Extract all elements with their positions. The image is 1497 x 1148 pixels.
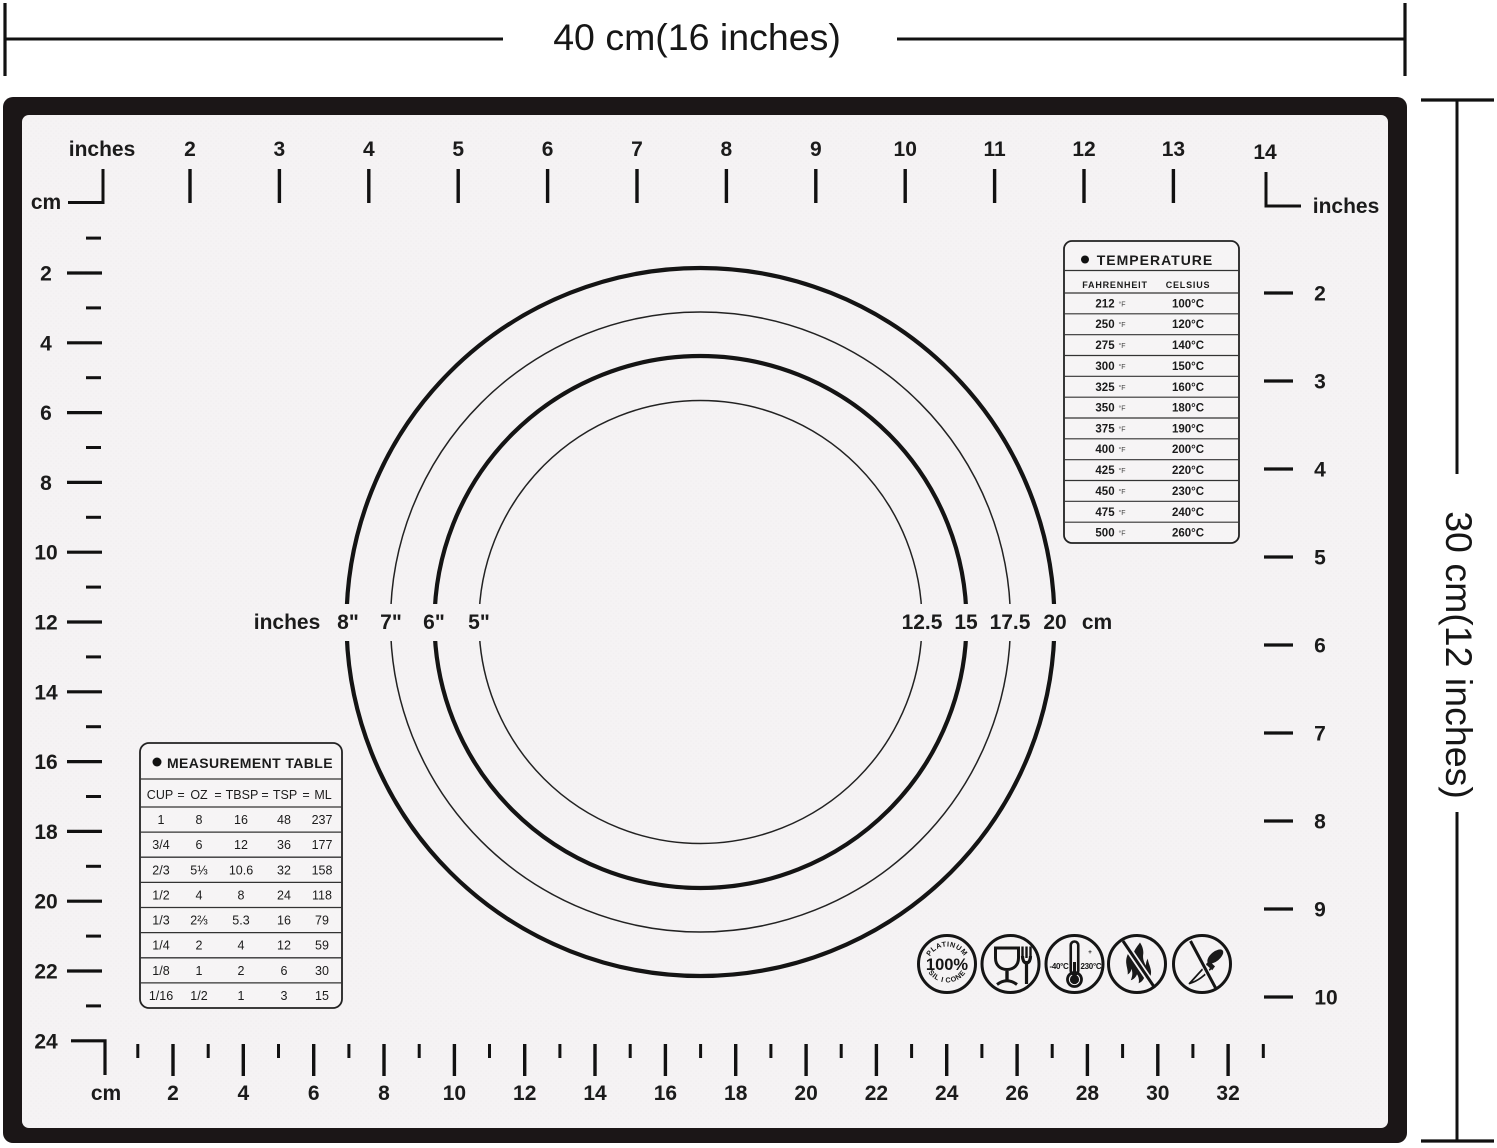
svg-text:5.3: 5.3 [232, 914, 249, 928]
svg-text:1/4: 1/4 [152, 939, 169, 953]
svg-text:12: 12 [1072, 138, 1095, 161]
svg-text:1: 1 [196, 964, 203, 978]
svg-text:cm: cm [91, 1082, 121, 1105]
svg-text:200°C: 200°C [1172, 444, 1204, 456]
svg-text:5": 5" [468, 611, 490, 634]
svg-text:10: 10 [34, 542, 57, 565]
svg-text:7: 7 [631, 138, 643, 161]
svg-text:OZ: OZ [190, 788, 208, 802]
svg-text:2: 2 [167, 1082, 179, 1105]
svg-text:6: 6 [196, 838, 203, 852]
svg-text:20: 20 [1043, 611, 1066, 634]
svg-text:4: 4 [363, 138, 375, 161]
svg-text:10: 10 [894, 138, 917, 161]
svg-text:190°C: 190°C [1172, 423, 1204, 435]
svg-text:5: 5 [1314, 547, 1326, 570]
svg-text:+: + [1088, 949, 1092, 956]
svg-text:2: 2 [238, 964, 245, 978]
svg-text:4: 4 [40, 332, 52, 355]
svg-text:6: 6 [542, 138, 554, 161]
svg-text:8": 8" [337, 611, 359, 634]
svg-text:26: 26 [1005, 1082, 1028, 1105]
svg-text:TSP: TSP [273, 788, 297, 802]
svg-text:2⅔: 2⅔ [190, 914, 208, 928]
svg-text:9: 9 [810, 138, 822, 161]
svg-text:1/2: 1/2 [190, 989, 207, 1003]
svg-text:inches: inches [254, 611, 321, 634]
svg-text:°F: °F [1118, 446, 1125, 454]
svg-text:-40°C: -40°C [1049, 962, 1069, 971]
svg-text:12: 12 [234, 838, 248, 852]
svg-text:100%: 100% [926, 956, 969, 974]
svg-text:22: 22 [865, 1082, 888, 1105]
svg-text:CUP: CUP [147, 788, 173, 802]
svg-text:°F: °F [1118, 425, 1125, 433]
svg-text:3/4: 3/4 [152, 838, 169, 852]
svg-text:30: 30 [1146, 1082, 1169, 1105]
svg-text:8: 8 [378, 1082, 390, 1105]
svg-text:2: 2 [184, 138, 196, 161]
svg-text:=: = [214, 788, 221, 802]
svg-text:6: 6 [40, 402, 52, 425]
svg-text:24: 24 [34, 1030, 58, 1053]
svg-text:FAHRENHEIT: FAHRENHEIT [1082, 280, 1148, 290]
svg-text:375: 375 [1095, 423, 1115, 435]
svg-text:5⅓: 5⅓ [190, 863, 208, 877]
svg-text:cm: cm [1082, 611, 1112, 634]
svg-text:TBSP: TBSP [226, 788, 259, 802]
svg-text:4: 4 [238, 939, 245, 953]
svg-text:150°C: 150°C [1172, 361, 1204, 373]
svg-text:16: 16 [234, 813, 248, 827]
svg-text:24: 24 [935, 1082, 959, 1105]
svg-text:260°C: 260°C [1172, 528, 1204, 540]
svg-text:15: 15 [315, 989, 329, 1003]
svg-text:6": 6" [423, 611, 445, 634]
svg-text:cm: cm [31, 191, 61, 214]
svg-text:10.6: 10.6 [229, 863, 253, 877]
svg-text:8: 8 [40, 472, 52, 495]
svg-text:15: 15 [954, 611, 978, 634]
svg-text:5: 5 [452, 138, 464, 161]
svg-text:°F: °F [1118, 467, 1125, 475]
svg-text:237: 237 [312, 813, 333, 827]
svg-text:°F: °F [1118, 509, 1125, 517]
svg-text:32: 32 [277, 863, 291, 877]
svg-text:1/2: 1/2 [152, 888, 169, 902]
svg-text:240°C: 240°C [1172, 507, 1204, 519]
svg-text:=: = [302, 788, 309, 802]
svg-text:500: 500 [1095, 528, 1114, 540]
svg-text:6: 6 [308, 1082, 320, 1105]
svg-text:3: 3 [1314, 371, 1326, 394]
svg-text:MEASUREMENT TABLE: MEASUREMENT TABLE [167, 755, 333, 771]
svg-text:48: 48 [277, 813, 291, 827]
svg-text:177: 177 [312, 838, 333, 852]
svg-text:275: 275 [1095, 340, 1115, 352]
svg-text:140°C: 140°C [1172, 340, 1204, 352]
svg-text:180°C: 180°C [1172, 403, 1204, 415]
svg-text:30 cm(12 inches): 30 cm(12 inches) [1438, 511, 1480, 799]
svg-text:2: 2 [40, 263, 52, 286]
svg-text:2/3: 2/3 [152, 863, 169, 877]
svg-text:4: 4 [237, 1082, 249, 1105]
svg-text:7": 7" [380, 611, 402, 634]
svg-text:1/3: 1/3 [152, 914, 169, 928]
svg-text:425: 425 [1095, 465, 1115, 477]
svg-text:59: 59 [315, 939, 329, 953]
svg-text:8: 8 [721, 138, 733, 161]
svg-text:9: 9 [1314, 899, 1326, 922]
svg-text:220°C: 220°C [1172, 465, 1204, 477]
svg-text:2: 2 [1314, 283, 1326, 306]
svg-text:32: 32 [1216, 1082, 1239, 1105]
svg-text:10: 10 [1314, 987, 1337, 1010]
svg-text:11: 11 [983, 138, 1006, 161]
svg-text:212: 212 [1095, 298, 1114, 310]
svg-text:=: = [261, 788, 268, 802]
svg-text:14: 14 [1253, 141, 1277, 164]
svg-text:24: 24 [277, 888, 291, 902]
svg-text:7: 7 [1314, 723, 1326, 746]
svg-text:14: 14 [34, 681, 58, 704]
svg-text:18: 18 [724, 1082, 748, 1105]
svg-text:8: 8 [1314, 811, 1326, 834]
svg-text:350: 350 [1095, 403, 1114, 415]
svg-text:12: 12 [277, 939, 291, 953]
svg-text:4: 4 [1314, 459, 1326, 482]
svg-text:6: 6 [281, 964, 288, 978]
svg-text:1/8: 1/8 [152, 964, 169, 978]
svg-text:°F: °F [1118, 384, 1125, 392]
svg-text:°F: °F [1118, 300, 1125, 308]
svg-text:8: 8 [196, 813, 203, 827]
svg-text:160°C: 160°C [1172, 382, 1204, 394]
svg-text:4: 4 [196, 888, 203, 902]
svg-text:1: 1 [158, 813, 165, 827]
svg-text:°F: °F [1118, 342, 1125, 350]
svg-text:°F: °F [1118, 363, 1125, 371]
svg-text:2: 2 [196, 939, 203, 953]
svg-text:300: 300 [1095, 361, 1114, 373]
svg-text:18: 18 [34, 821, 58, 844]
svg-text:36: 36 [277, 838, 291, 852]
svg-text:12: 12 [34, 612, 57, 635]
svg-text:°F: °F [1118, 488, 1125, 496]
svg-text:1/16: 1/16 [149, 989, 173, 1003]
svg-text:120°C: 120°C [1172, 319, 1204, 331]
svg-text:250: 250 [1095, 319, 1114, 331]
svg-text:TEMPERATURE: TEMPERATURE [1097, 252, 1214, 268]
svg-text:400: 400 [1095, 444, 1114, 456]
svg-text:16: 16 [654, 1082, 677, 1105]
svg-text:°F: °F [1118, 321, 1125, 329]
svg-text:16: 16 [277, 914, 291, 928]
svg-text:3: 3 [281, 989, 288, 1003]
svg-text:ML: ML [314, 788, 331, 802]
svg-text:17.5: 17.5 [990, 611, 1031, 634]
svg-text:158: 158 [312, 863, 333, 877]
svg-text:13: 13 [1162, 138, 1185, 161]
svg-text:inches: inches [1313, 195, 1380, 218]
svg-text:1: 1 [238, 989, 245, 1003]
svg-text:230°C: 230°C [1172, 486, 1204, 498]
svg-text:16: 16 [34, 751, 57, 774]
svg-text:12: 12 [513, 1082, 536, 1105]
svg-text:3: 3 [274, 138, 286, 161]
svg-text:79: 79 [315, 914, 329, 928]
svg-text:22: 22 [34, 961, 57, 984]
svg-text:118: 118 [312, 888, 332, 902]
svg-text:450: 450 [1095, 486, 1114, 498]
svg-text:325: 325 [1095, 382, 1115, 394]
svg-text:230°C: 230°C [1081, 962, 1102, 971]
svg-text:12.5: 12.5 [902, 611, 943, 634]
svg-text:10: 10 [443, 1082, 466, 1105]
svg-text:°F: °F [1118, 405, 1125, 413]
svg-text:6: 6 [1314, 635, 1326, 658]
svg-text:20: 20 [794, 1082, 817, 1105]
svg-text:14: 14 [583, 1082, 607, 1105]
svg-text:40 cm(16 inches): 40 cm(16 inches) [553, 16, 841, 58]
svg-text:30: 30 [315, 964, 329, 978]
svg-text:8: 8 [238, 888, 245, 902]
svg-text:475: 475 [1095, 507, 1115, 519]
svg-text:°F: °F [1118, 530, 1125, 538]
svg-text:CELSIUS: CELSIUS [1166, 280, 1211, 290]
svg-text:100°C: 100°C [1172, 298, 1204, 310]
svg-text:=: = [177, 788, 184, 802]
svg-text:28: 28 [1076, 1082, 1100, 1105]
svg-text:inches: inches [69, 138, 136, 161]
svg-text:20: 20 [34, 891, 57, 914]
